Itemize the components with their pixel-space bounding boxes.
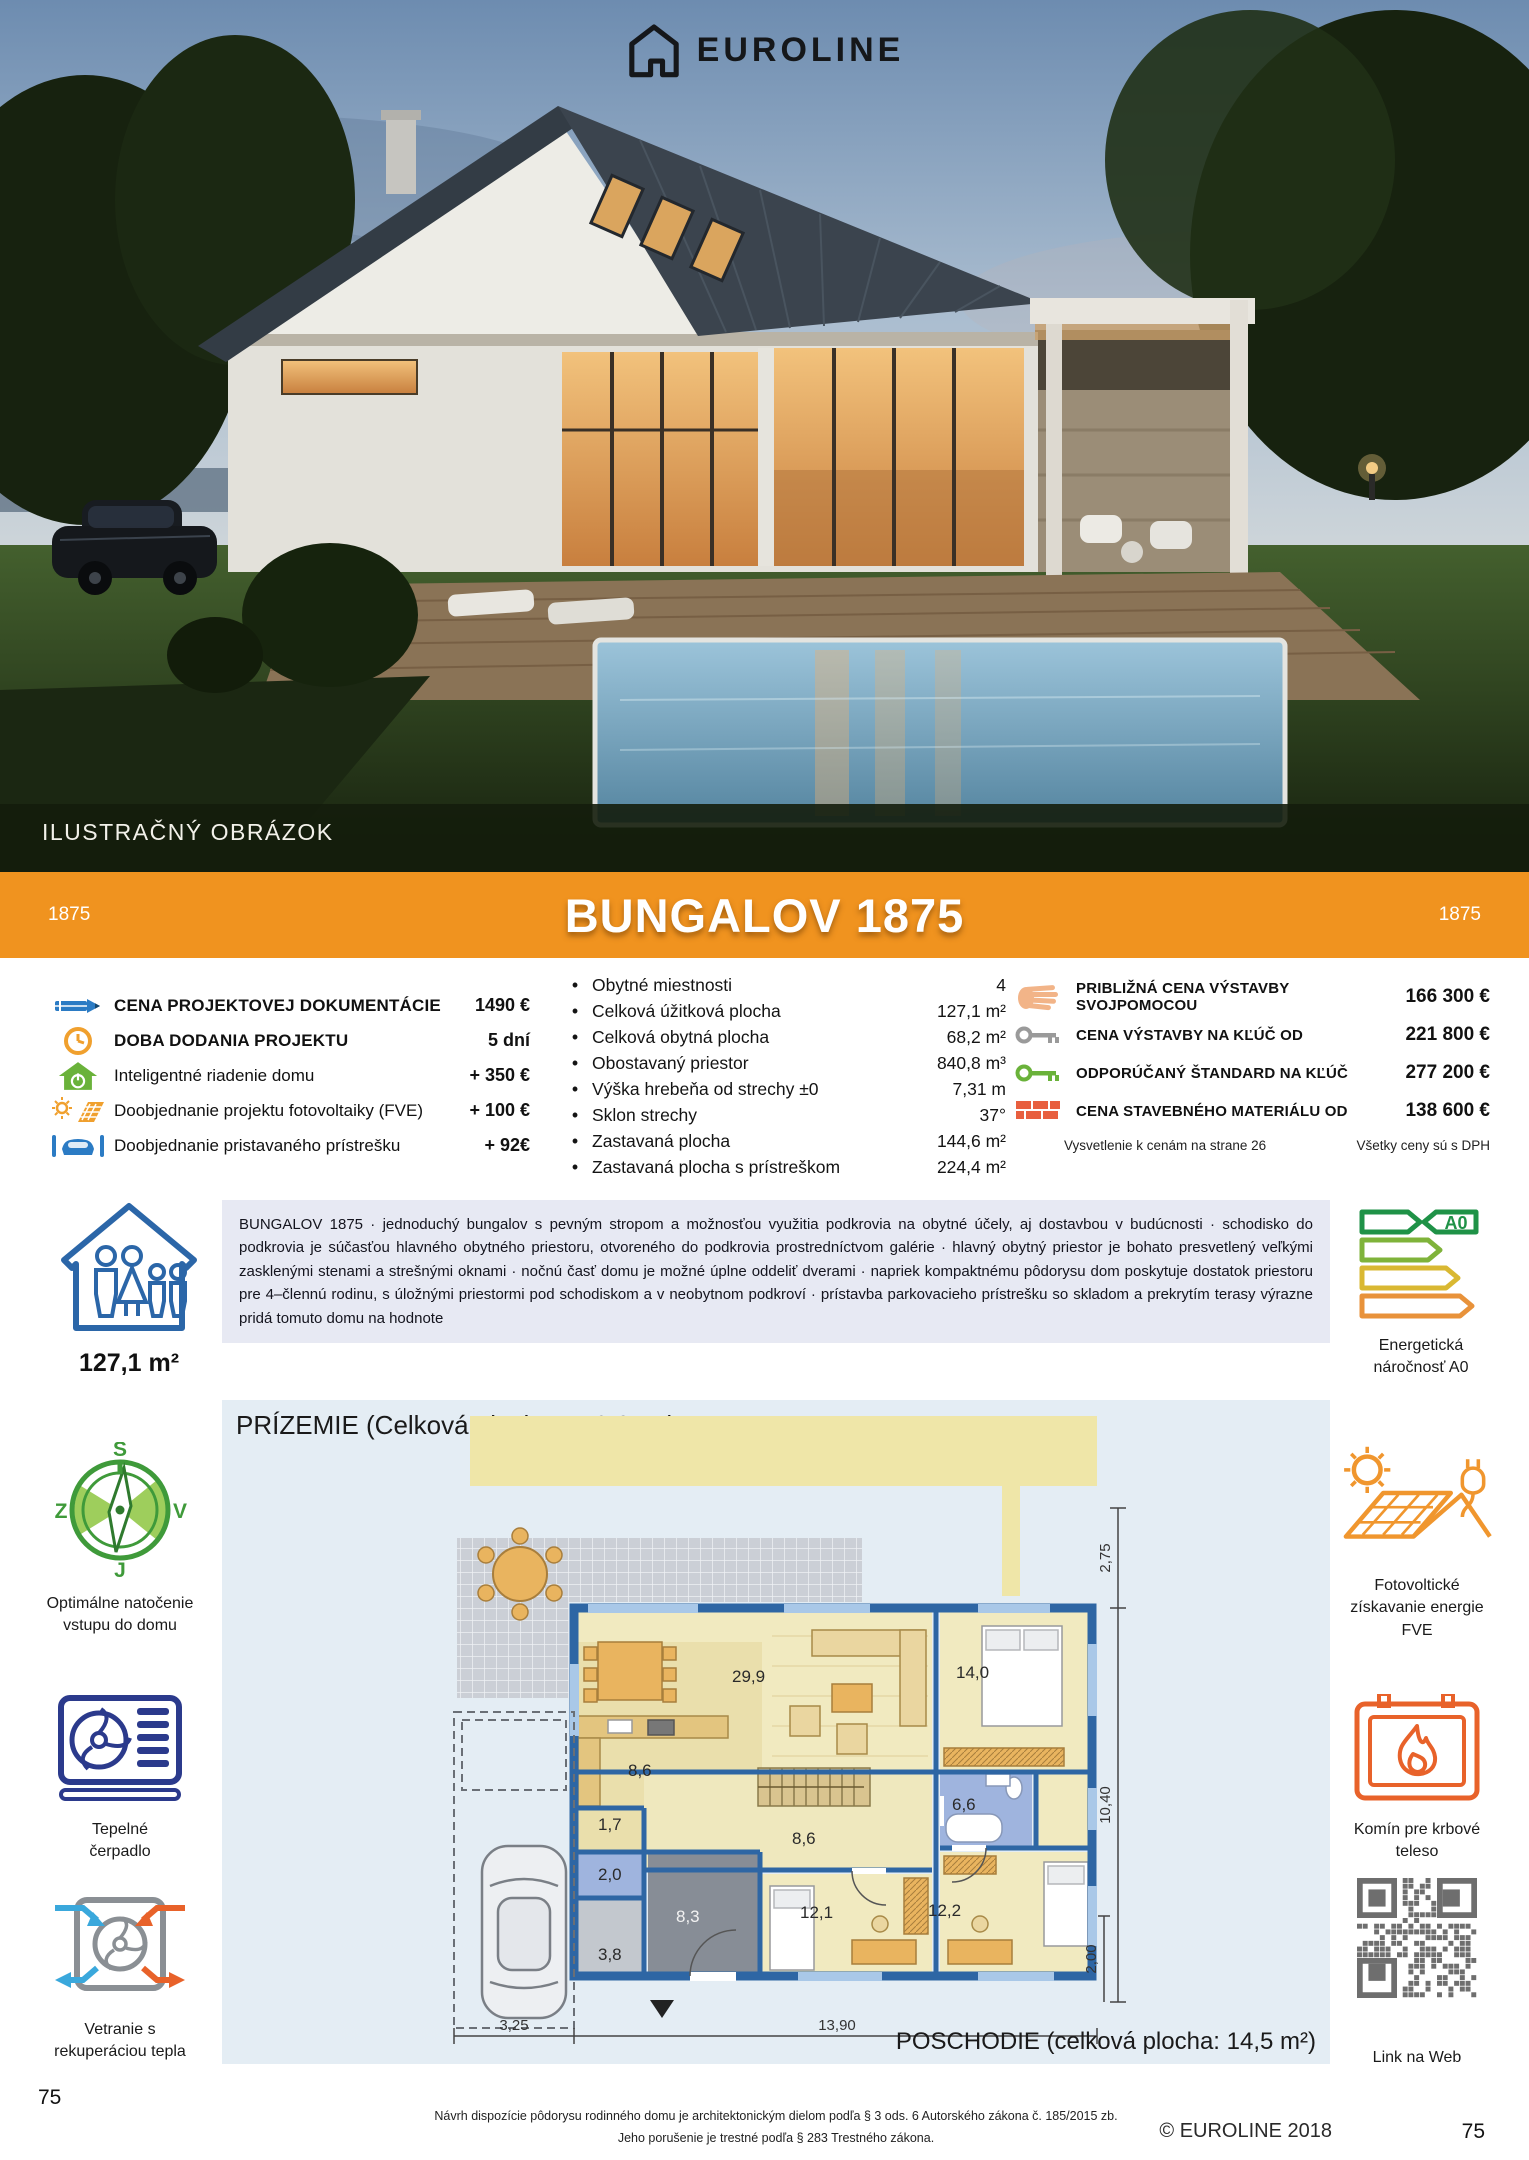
bullet-icon: •: [558, 1131, 592, 1152]
heat-pump-caption: Tepelné čerpadlo: [35, 1819, 205, 1864]
pencil-icon: [52, 995, 104, 1017]
item-label: Inteligentné riadenie domu: [114, 1066, 459, 1086]
price-row: CENA VÝSTAVBY NA KĽÚČ OD 221 800 €: [1012, 1016, 1490, 1054]
carport-icon: [52, 1133, 104, 1159]
smart-home-icon: [52, 1060, 104, 1092]
dim-rear-offset: 2,00: [1083, 1944, 1100, 1973]
spec-value: 4: [996, 975, 1006, 996]
price-label: CENA STAVEBNÉHO MATERIÁLU OD: [1076, 1103, 1393, 1120]
room-area-label: 8,3: [676, 1907, 700, 1926]
build-pricing-list: PRIBLIŽNÁ CENA VÝSTAVBY SVOJPOMOCOU 166 …: [1012, 978, 1490, 1153]
key-green-icon: [1012, 1063, 1064, 1083]
title-banner: 1875 BUNGALOV 1875 1875: [0, 872, 1529, 958]
spec-label: Výška hrebeňa od strechy ±0: [592, 1079, 953, 1100]
page-title: BUNGALOV 1875: [565, 888, 965, 943]
bullet-icon: •: [558, 1027, 592, 1048]
list-item: DOBA DODANIA PROJEKTU 5 dní: [52, 1023, 530, 1058]
price-row: PRIBLIŽNÁ CENA VÝSTAVBY SVOJPOMOCOU 166 …: [1012, 978, 1490, 1016]
spec-row: •Obytné miestnosti4: [558, 972, 1006, 998]
qr-caption: Link na Web: [1332, 2047, 1502, 2069]
item-value: + 350 €: [469, 1065, 530, 1086]
spec-value: 7,31 m: [953, 1079, 1007, 1100]
dim-house-depth: 10,40: [1097, 1786, 1114, 1824]
qr-feature: Link na Web: [1332, 1878, 1502, 2069]
project-pricing-list: CENA PROJEKTOVEJ DOKUMENTÁCIE 1490 € DOB…: [52, 988, 530, 1163]
price-notes: Vysvetlenie k cenám na strane 26 Všetky …: [1012, 1138, 1490, 1153]
list-item: Doobjednanie projektu fotovoltaiky (FVE)…: [52, 1093, 530, 1128]
spec-row: •Celková obytná plocha68,2 m²: [558, 1024, 1006, 1050]
heat-pump-icon: [53, 1692, 187, 1804]
house-family-icon: [54, 1198, 204, 1336]
spec-label: Celková úžitková plocha: [592, 1001, 937, 1022]
fve-caption: Fotovoltické získavanie energie FVE: [1332, 1575, 1502, 1642]
energy-caption: Energetická náročnosť A0: [1336, 1335, 1506, 1380]
clock-icon: [52, 1026, 104, 1056]
price-row: CENA STAVEBNÉHO MATERIÁLU OD 138 600 €: [1012, 1092, 1490, 1130]
spec-value: 840,8 m³: [937, 1053, 1006, 1074]
spec-label: Zastavaná plocha: [592, 1131, 937, 1152]
price-label: ODPORÚČANÝ ŠTANDARD NA KĽÚČ: [1076, 1065, 1393, 1082]
price-row: ODPORÚČANÝ ŠTANDARD NA KĽÚČ 277 200 €: [1012, 1054, 1490, 1092]
energy-label-icon: A0: [1358, 1206, 1484, 1320]
brand-name: EUROLINE: [697, 31, 905, 70]
area-feature: 127,1 m²: [38, 1198, 220, 1378]
compass-west: Z: [55, 1500, 68, 1523]
room-area-label: 3,8: [598, 1945, 622, 1964]
list-item: Doobjednanie pristavaného prístrešku + 9…: [52, 1128, 530, 1163]
spec-row: •Obostavaný priestor840,8 m³: [558, 1050, 1006, 1076]
hand-icon: [1012, 982, 1064, 1012]
floorplan-drawing: 2,75 10,40 2,00 3,25 13,90 29,9 14,0 8,6…: [292, 1416, 1172, 2056]
spec-row: •Zastavaná plocha s prístreškom224,4 m²: [558, 1154, 1006, 1180]
ventilation-caption: Vetranie s rekuperáciou tepla: [35, 2019, 205, 2064]
compass-icon: S V J Z: [53, 1442, 187, 1578]
ventilation-feature: Vetranie s rekuperáciou tepla: [35, 1892, 205, 2064]
specs-list: •Obytné miestnosti4 •Celková úžitková pl…: [558, 972, 1006, 1180]
dim-terrace-depth: 2,75: [1097, 1543, 1114, 1572]
spec-label: Obostavaný priestor: [592, 1053, 937, 1074]
spec-value: 224,4 m²: [937, 1157, 1006, 1178]
spec-row: •Zastavaná plocha144,6 m²: [558, 1128, 1006, 1154]
price-label: CENA VÝSTAVBY NA KĽÚČ OD: [1076, 1027, 1393, 1044]
roof-overhang: [470, 1416, 1097, 1486]
spec-value: 144,6 m²: [937, 1131, 1006, 1152]
bullet-icon: •: [558, 1105, 592, 1126]
brand-logo: EUROLINE: [0, 20, 1529, 80]
bullet-icon: •: [558, 1053, 592, 1074]
compass-south: J: [114, 1559, 126, 1578]
room-area-label: 6,6: [952, 1795, 976, 1814]
model-code-left: 1875: [48, 904, 90, 926]
item-value: + 100 €: [469, 1100, 530, 1121]
price-note-left: Vysvetlenie k cenám na strane 26: [1064, 1138, 1266, 1153]
compass-caption: Optimálne natočenie vstupu do domu: [35, 1593, 205, 1638]
spec-label: Zastavaná plocha s prístreškom: [592, 1157, 937, 1178]
dim-house-width: 13,90: [818, 2017, 856, 2034]
catalog-page: EUROLINE ILUSTRAČNÝ OBRÁZOK 1875 BUNGALO…: [0, 0, 1529, 2160]
info-section: CENA PROJEKTOVEJ DOKUMENTÁCIE 1490 € DOB…: [0, 958, 1529, 1192]
fve-feature: Fotovoltické získavanie energie FVE: [1332, 1442, 1502, 1642]
compass-feature: S V J Z Optimálne natočenie vstupu do do…: [35, 1442, 205, 1638]
bullet-icon: •: [558, 1079, 592, 1100]
energy-badge: A0: [1444, 1213, 1467, 1233]
upper-floor-note: POSCHODIE (celková plocha: 14,5 m²): [896, 2028, 1316, 2056]
room-area-label: 12,2: [928, 1901, 961, 1920]
compass-north: S: [113, 1442, 127, 1461]
heat-pump-feature: Tepelné čerpadlo: [35, 1692, 205, 1864]
spec-row: •Celková úžitková plocha127,1 m²: [558, 998, 1006, 1024]
price-value: 277 200 €: [1405, 1062, 1490, 1084]
item-value: 5 dní: [488, 1030, 530, 1051]
item-label: Doobjednanie projektu fotovoltaiky (FVE): [114, 1101, 459, 1121]
item-label: Doobjednanie pristavaného prístrešku: [114, 1136, 474, 1156]
ventilation-icon: [53, 1892, 187, 2004]
item-label: DOBA DODANIA PROJEKTU: [114, 1031, 478, 1051]
item-value: + 92€: [484, 1135, 530, 1156]
page-number-left: 75: [38, 2086, 61, 2110]
fireplace-caption: Komín pre krbové teleso: [1332, 1819, 1502, 1864]
qr-code-icon: [1357, 1878, 1477, 1998]
room-area-label: 14,0: [956, 1663, 989, 1682]
bullet-icon: •: [558, 1157, 592, 1178]
spec-row: •Sklon strechy37°: [558, 1102, 1006, 1128]
solar-panel-icon: [52, 1096, 104, 1126]
model-code-right: 1875: [1439, 904, 1481, 926]
price-value: 166 300 €: [1405, 986, 1490, 1008]
room-area-label: 1,7: [598, 1815, 622, 1834]
room-area-label: 8,6: [628, 1761, 652, 1780]
spec-label: Sklon strechy: [592, 1105, 980, 1126]
energy-feature: A0 Energetická náročnosť A0: [1336, 1206, 1506, 1380]
house-description: BUNGALOV 1875 · jednoduchý bungalov s pe…: [222, 1200, 1330, 1343]
dim-carport-width: 3,25: [499, 2017, 528, 2034]
photo-caption: ILUSTRAČNÝ OBRÁZOK: [42, 819, 334, 846]
bullet-icon: •: [558, 975, 592, 996]
bullet-icon: •: [558, 1001, 592, 1022]
room-area-label: 2,0: [598, 1865, 622, 1884]
compass-east: V: [173, 1500, 187, 1523]
fve-icon: [1337, 1442, 1497, 1560]
page-number-right: 75: [1462, 2120, 1485, 2144]
spec-value: 68,2 m²: [947, 1027, 1006, 1048]
spec-row: •Výška hrebeňa od strechy ±07,31 m: [558, 1076, 1006, 1102]
floorplan-panel: PRÍZEMIE (Celková plocha: 112,6 m²): [222, 1400, 1330, 2064]
room-area-label: 12,1: [800, 1903, 833, 1922]
plan-car: [482, 1846, 566, 2018]
entrance-arrow: [650, 2000, 674, 2018]
room-area-label: 8,6: [792, 1829, 816, 1848]
fireplace-icon: [1347, 1694, 1487, 1804]
total-area-value: 127,1 m²: [38, 1349, 220, 1378]
spec-label: Celková obytná plocha: [592, 1027, 947, 1048]
price-value: 221 800 €: [1405, 1024, 1490, 1046]
price-value: 138 600 €: [1405, 1100, 1490, 1122]
spec-value: 127,1 m²: [937, 1001, 1006, 1022]
spec-label: Obytné miestnosti: [592, 975, 996, 996]
key-gray-icon: [1012, 1025, 1064, 1045]
price-label: PRIBLIŽNÁ CENA VÝSTAVBY SVOJPOMOCOU: [1076, 980, 1393, 1014]
spec-value: 37°: [980, 1105, 1006, 1126]
copyright: © EUROLINE 2018: [1159, 2120, 1332, 2143]
room-area-label: 29,9: [732, 1667, 765, 1686]
item-value: 1490 €: [475, 995, 530, 1016]
list-item: Inteligentné riadenie domu + 350 €: [52, 1058, 530, 1093]
hero-photo: EUROLINE ILUSTRAČNÝ OBRÁZOK: [0, 0, 1529, 872]
item-label: CENA PROJEKTOVEJ DOKUMENTÁCIE: [114, 996, 465, 1016]
list-item: CENA PROJEKTOVEJ DOKUMENTÁCIE 1490 €: [52, 988, 530, 1023]
fireplace-feature: Komín pre krbové teleso: [1332, 1694, 1502, 1864]
euroline-house-icon: [625, 20, 683, 80]
house-photo-illustration: [0, 0, 1529, 872]
price-note-right: Všetky ceny sú s DPH: [1356, 1138, 1490, 1153]
bricks-icon: [1012, 1100, 1064, 1122]
